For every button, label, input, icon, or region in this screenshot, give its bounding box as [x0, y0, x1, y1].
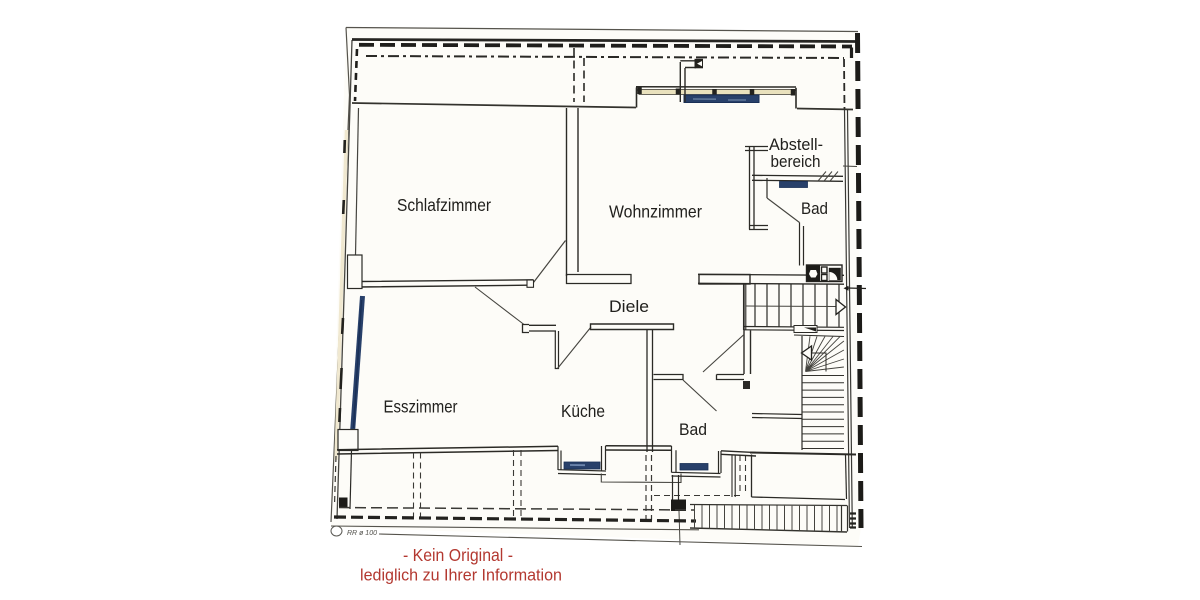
svg-text:lediglich zu Ihrer Information: lediglich zu Ihrer Information — [360, 566, 562, 585]
svg-text:Bad: Bad — [801, 200, 828, 218]
svg-text:RR ø 100: RR ø 100 — [347, 528, 378, 537]
svg-text:Bad: Bad — [679, 421, 707, 439]
svg-text:Schlafzimmer: Schlafzimmer — [397, 195, 491, 215]
svg-text:- Kein Original -: - Kein Original - — [403, 545, 513, 565]
svg-text:bereich: bereich — [771, 152, 821, 171]
svg-text:Wohnzimmer: Wohnzimmer — [609, 202, 702, 222]
svg-text:Esszimmer: Esszimmer — [384, 397, 458, 417]
svg-text:Diele: Diele — [609, 297, 649, 316]
svg-text:Küche: Küche — [561, 401, 605, 421]
